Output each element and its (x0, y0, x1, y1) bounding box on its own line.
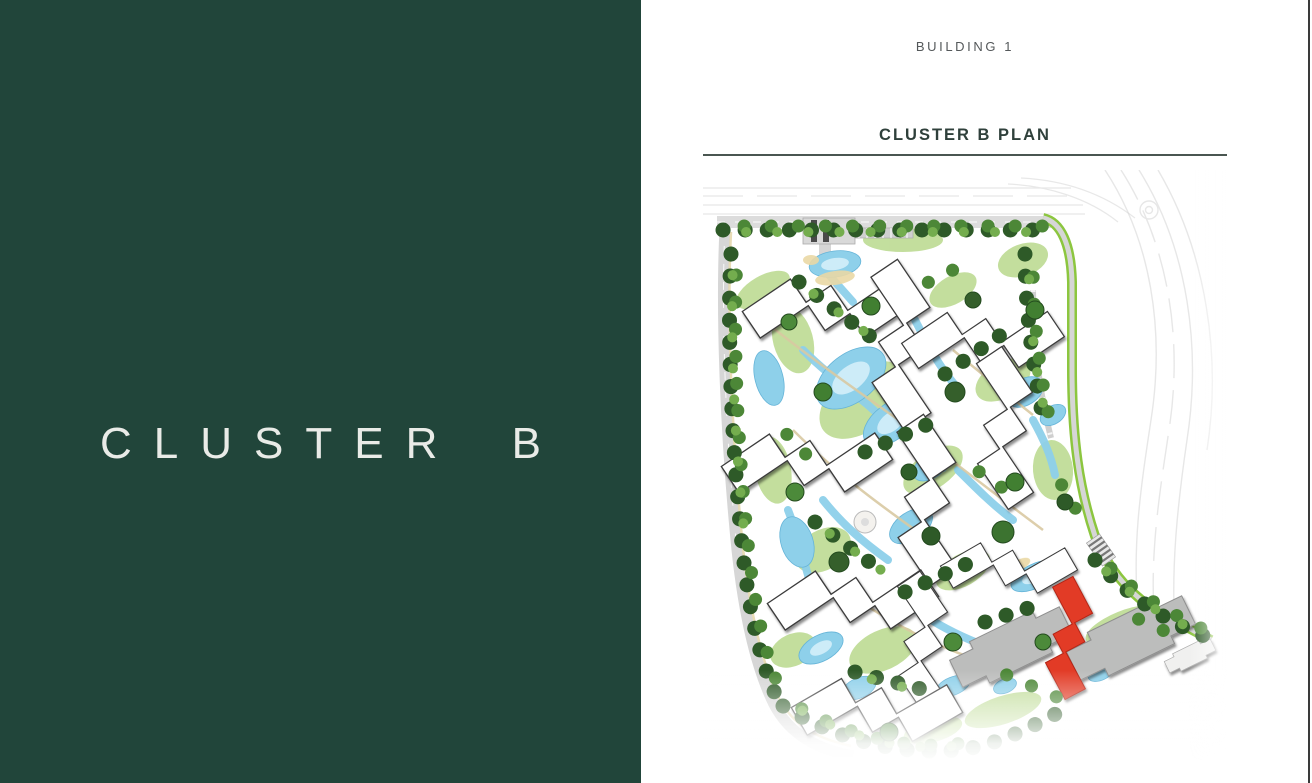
bottom-fade (703, 670, 1227, 762)
plan-heading: CLUSTER B PLAN (703, 126, 1227, 145)
page-edge-line (1308, 0, 1310, 783)
site-plan-map (703, 170, 1227, 762)
brochure-page: CLUSTER B BUILDING 1 CLUSTER B PLAN (0, 0, 1312, 783)
cluster-title: CLUSTER B (0, 422, 641, 466)
heading-rule (703, 154, 1227, 156)
right-panel: BUILDING 1 CLUSTER B PLAN (641, 0, 1312, 783)
left-panel: CLUSTER B (0, 0, 642, 783)
circular-plaza (854, 511, 876, 533)
faint-highway-lines (703, 178, 1135, 222)
right-fade (1189, 170, 1227, 762)
plan-header: CLUSTER B PLAN (703, 126, 1227, 156)
building-label: BUILDING 1 (703, 39, 1227, 54)
site-plan-graphic (703, 170, 1227, 762)
